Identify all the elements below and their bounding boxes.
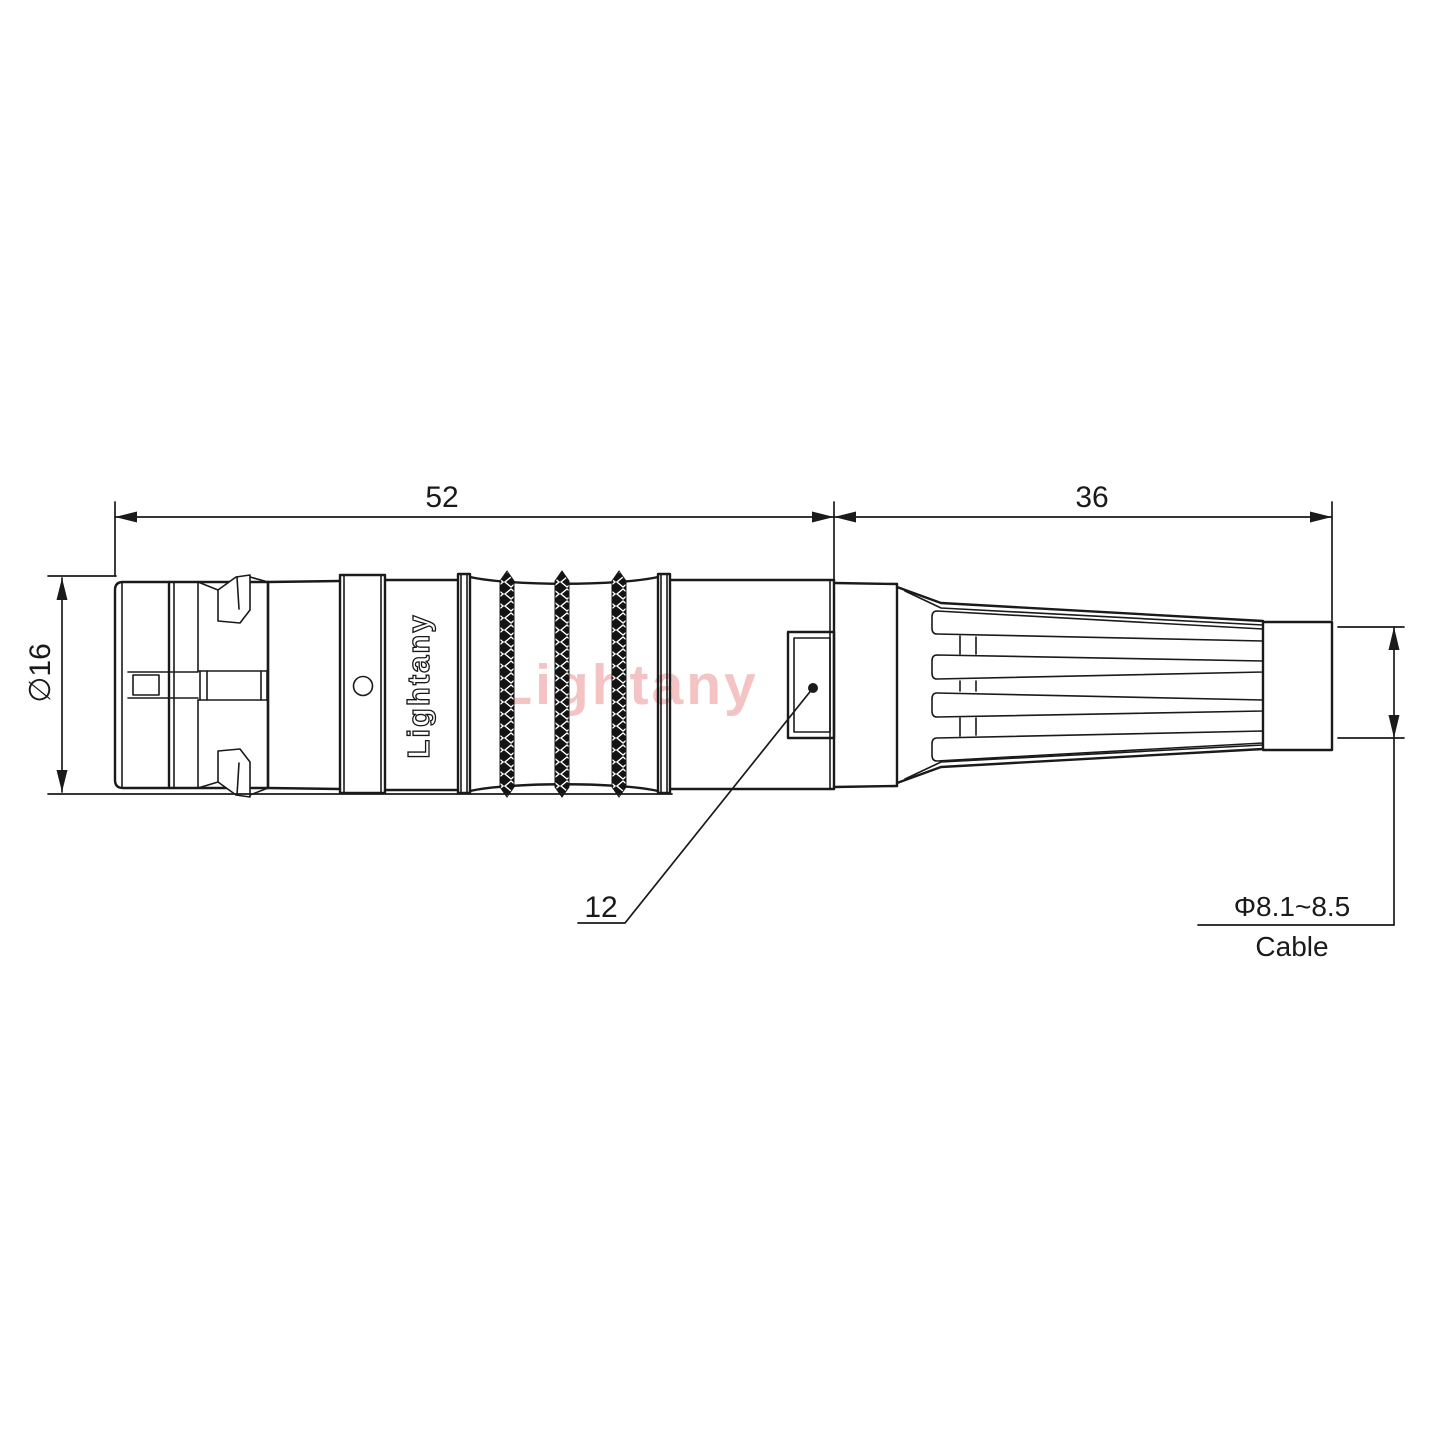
drawing-page: Lightany <box>0 0 1440 1440</box>
canvas-background <box>0 0 1440 1440</box>
dimension-36-label: 36 <box>1075 481 1108 514</box>
dimension-diameter16-label: ∅16 <box>24 643 57 703</box>
dimension-52-label: 52 <box>425 481 458 514</box>
watermark-text: Lightany <box>497 653 759 717</box>
knurl-band <box>612 571 626 797</box>
cable-exit-cap <box>1263 622 1332 750</box>
knurl-band <box>500 571 514 797</box>
cable-caption-label: Cable <box>1255 931 1328 962</box>
cable-diameter-label: Φ8.1~8.5 <box>1234 891 1351 922</box>
knurl-band <box>555 571 569 797</box>
connector-technical-drawing: Lightany <box>0 0 1440 1440</box>
dimension-12-label: 12 <box>584 891 617 924</box>
engraving-text: Lightany <box>401 613 436 758</box>
